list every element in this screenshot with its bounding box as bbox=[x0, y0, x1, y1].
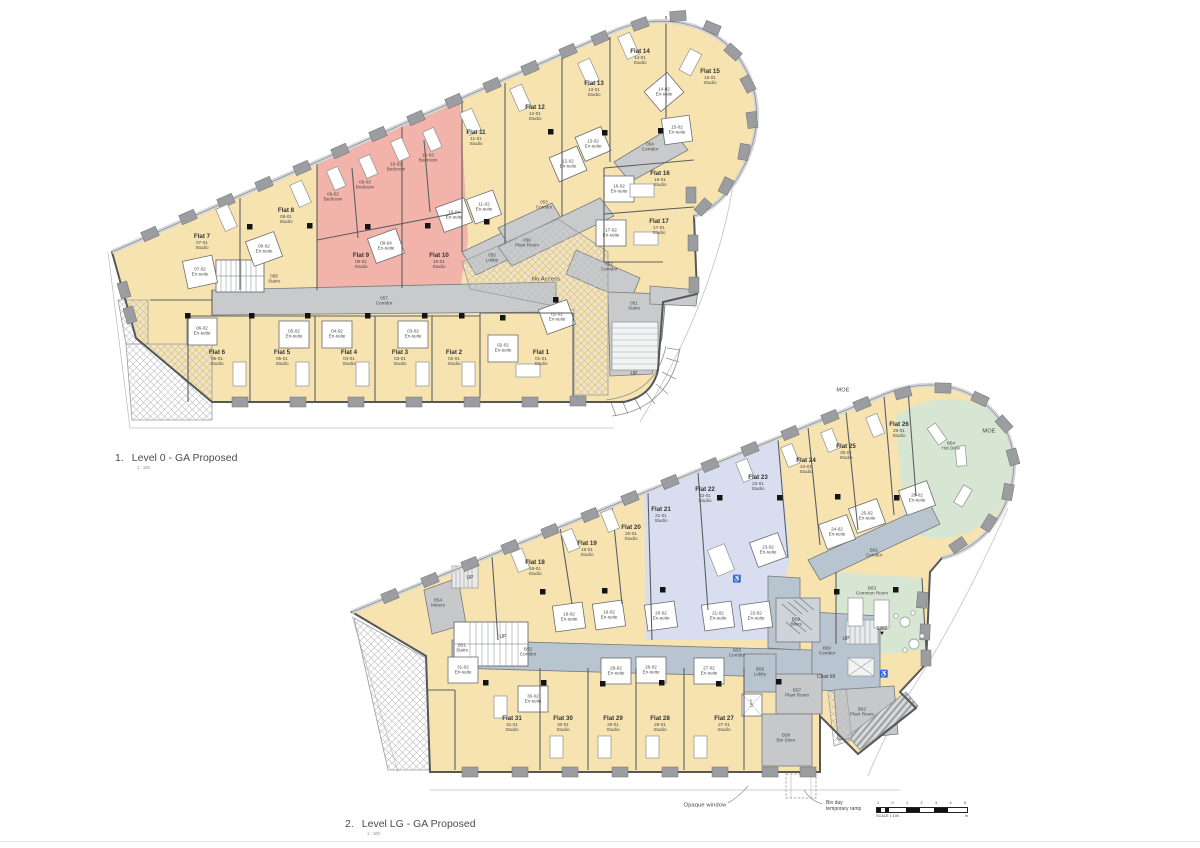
plan-levellg bbox=[352, 383, 1020, 804]
lift-shaft bbox=[742, 694, 762, 716]
scale-bar: 1012345 SCALE 1:100 m bbox=[876, 801, 968, 818]
floorplan-svg bbox=[0, 0, 1200, 848]
title-level0: 1.Level 0 - GA Proposed 1 : 100 bbox=[115, 452, 237, 470]
scale-tick-label: 0 bbox=[891, 801, 893, 805]
title-number: 1. bbox=[115, 452, 124, 464]
stairs-051 bbox=[612, 322, 658, 370]
scale-tick-label: 3 bbox=[935, 801, 937, 805]
scale-tick-label: 2 bbox=[920, 801, 922, 805]
plan-level0 bbox=[108, 10, 758, 428]
scale-bar-label: SCALE 1:100 bbox=[876, 814, 899, 818]
bin-day-ramp bbox=[786, 774, 816, 798]
scale-bar-unit: m bbox=[965, 814, 968, 818]
scale-tick-label: 5 bbox=[964, 801, 966, 805]
title-scale: 1 : 100 bbox=[137, 465, 237, 470]
scale-tick-label: 1 bbox=[877, 801, 879, 805]
scale-bar-ticks: 1012345 bbox=[876, 801, 968, 807]
drawing-sheet: Flat 707-01StudioFlat 808-01StudioFlat 9… bbox=[0, 0, 1200, 848]
sheet-edge-line bbox=[0, 841, 1200, 842]
scale-tick-label: 1 bbox=[906, 801, 908, 805]
scale-bar-graphic bbox=[876, 807, 968, 813]
title-text: Level 0 - GA Proposed bbox=[132, 452, 238, 464]
title-scale: 1 : 100 bbox=[367, 831, 476, 836]
title-number: 2. bbox=[345, 818, 354, 830]
annotation-leaders bbox=[728, 786, 822, 804]
title-levellg: 2.Level LG - GA Proposed 1 : 100 bbox=[345, 818, 476, 836]
scale-tick-label: 4 bbox=[949, 801, 951, 805]
title-text: Level LG - GA Proposed bbox=[362, 818, 476, 830]
